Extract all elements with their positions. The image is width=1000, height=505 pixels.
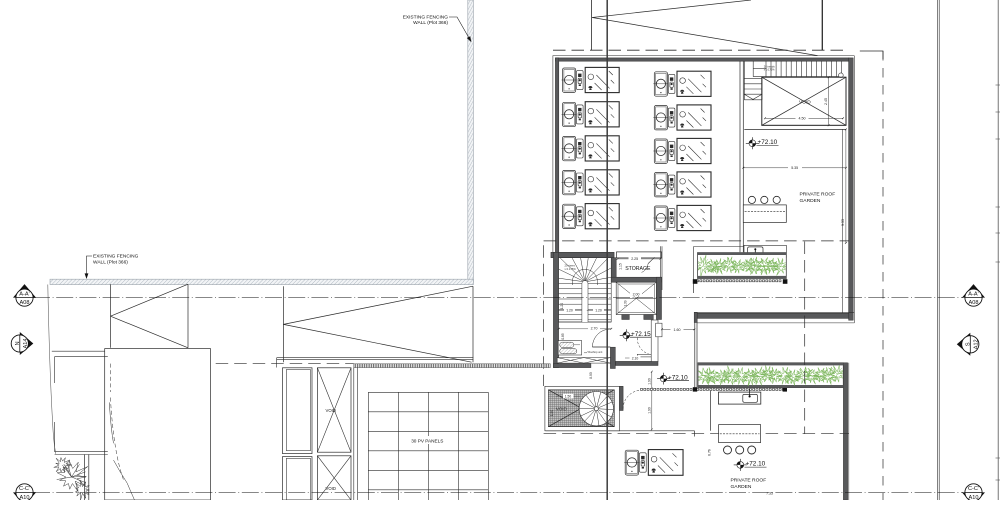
svg-text:A08: A08	[20, 300, 30, 306]
svg-text:PRIVATE ROOF: PRIVATE ROOF	[800, 192, 836, 198]
svg-text:+72.15: +72.15	[631, 331, 651, 338]
svg-text:6.76: 6.76	[707, 449, 711, 456]
svg-text:1.60: 1.60	[674, 328, 681, 332]
svg-text:0.85: 0.85	[561, 333, 565, 339]
svg-text:N: N	[15, 341, 21, 345]
svg-text:S: S	[965, 342, 971, 346]
svg-text:Rooftop unit: Rooftop unit	[588, 350, 602, 354]
svg-text:PRIVATE ROOF: PRIVATE ROOF	[731, 477, 767, 483]
svg-text:A08: A08	[969, 300, 979, 306]
svg-text:A12: A12	[974, 339, 980, 349]
svg-text:20 risers: 20 risers	[565, 263, 576, 267]
svg-text:WALL (Plot 366): WALL (Plot 366)	[413, 20, 448, 26]
svg-text:1.20: 1.20	[560, 303, 564, 309]
svg-text:A14: A14	[23, 339, 29, 349]
svg-text:2.10: 2.10	[632, 356, 639, 360]
svg-text:A-A': A-A'	[19, 291, 29, 297]
svg-text:VOID: VOID	[326, 408, 337, 413]
svg-text:WALL (Plot 366): WALL (Plot 366)	[93, 259, 128, 265]
svg-text:2.70: 2.70	[591, 326, 598, 330]
svg-text:1.90: 1.90	[647, 378, 651, 385]
svg-text:+72.10: +72.10	[758, 139, 778, 146]
svg-text:1.90: 1.90	[647, 407, 651, 414]
svg-text:GARDEN: GARDEN	[731, 484, 752, 490]
svg-text:1.50: 1.50	[565, 395, 572, 399]
svg-text:2.45: 2.45	[824, 98, 828, 105]
svg-text:EXISTING FENCING: EXISTING FENCING	[93, 254, 139, 260]
svg-text:30 PV PANELS: 30 PV PANELS	[411, 438, 443, 443]
svg-text:x 0.175%: x 0.175%	[764, 68, 776, 72]
svg-text:C-C': C-C'	[19, 486, 30, 492]
svg-text:VOID: VOID	[556, 407, 567, 412]
svg-text:1.90: 1.90	[550, 410, 554, 416]
svg-text:VOID: VOID	[799, 99, 811, 105]
svg-text:A-A': A-A'	[968, 291, 978, 297]
svg-text:8.90: 8.90	[589, 372, 593, 379]
svg-text:VOID: VOID	[326, 486, 337, 491]
svg-text:1.15: 1.15	[618, 263, 622, 270]
svg-text:+72.10: +72.10	[746, 461, 766, 468]
svg-text:A10: A10	[20, 495, 30, 500]
svg-text:GARDEN: GARDEN	[800, 198, 821, 204]
svg-text:9.55: 9.55	[841, 219, 845, 226]
svg-text:EXISTING FENCING: EXISTING FENCING	[403, 15, 449, 21]
svg-text:+72.10: +72.10	[668, 374, 688, 381]
svg-text:2.00: 2.00	[633, 293, 640, 297]
svg-text:A10: A10	[969, 495, 979, 500]
svg-text:4.50: 4.50	[799, 117, 806, 121]
svg-text:C-C': C-C'	[968, 486, 979, 492]
svg-text:5.35: 5.35	[791, 166, 798, 170]
svg-text:1.20: 1.20	[566, 309, 573, 313]
svg-text:2.25: 2.25	[631, 257, 638, 261]
svg-text:1.39: 1.39	[624, 300, 628, 306]
svg-text:x 0.175%: x 0.175%	[565, 267, 577, 271]
svg-text:1.20: 1.20	[595, 309, 602, 313]
